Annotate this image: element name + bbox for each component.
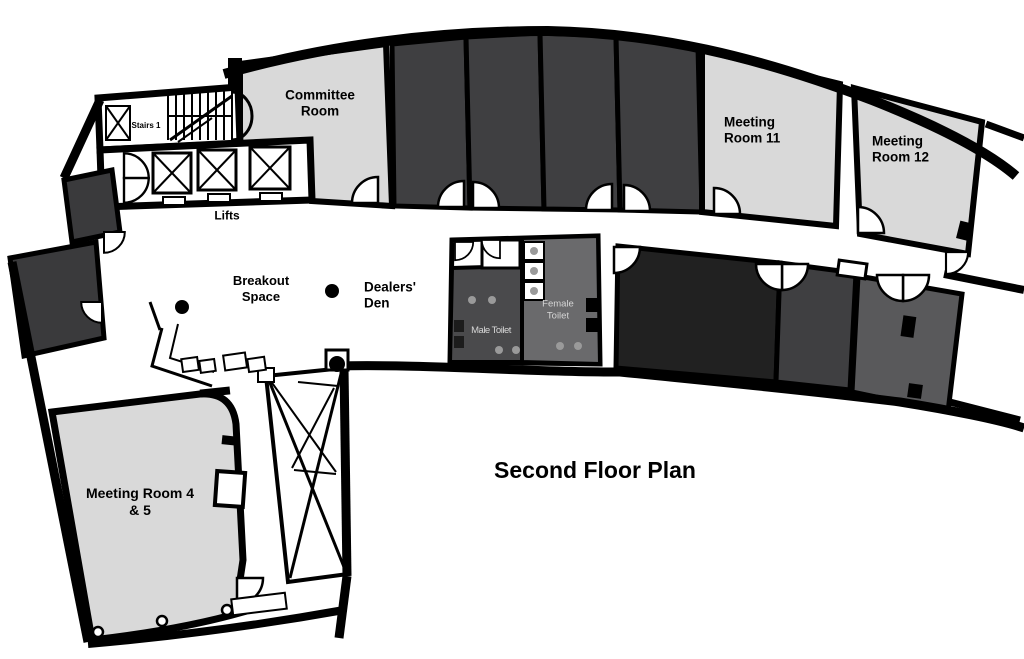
column (454, 336, 464, 348)
column-dot (325, 284, 339, 298)
wall-opening (837, 260, 867, 279)
stairs-1-label: Stairs 1 (122, 121, 170, 131)
plan-title: Second Floor Plan (445, 456, 745, 484)
wall-opening (215, 471, 245, 507)
column-dot (175, 300, 189, 314)
dealers-den-label: Dealers' Den (364, 280, 426, 313)
wall-nub (907, 383, 923, 399)
meeting-room-12-label: Meeting Room 12 (872, 134, 942, 167)
wall (986, 124, 1024, 138)
column-circle (222, 605, 232, 615)
floor-plan-canvas: Stairs 1 Lifts Committee Room Meeting Ro… (0, 0, 1024, 659)
female-toilet-label: Female Toilet (537, 298, 579, 321)
wall (944, 274, 1024, 290)
wall-nub (200, 386, 231, 397)
column-circle (93, 627, 103, 637)
meeting-room-4-5-label: Meeting Room 4 & 5 (84, 485, 196, 519)
column (586, 318, 598, 332)
bottom-left-block (52, 302, 348, 644)
meeting-room-11-label: Meeting Room 11 (724, 115, 794, 148)
door-arc (946, 252, 968, 274)
committee-room-label: Committee Room (275, 88, 365, 121)
wall-nub (222, 435, 239, 446)
column-circle (157, 616, 167, 626)
outer-wall-left-top (64, 100, 100, 178)
breakout-space-label: Breakout Space (226, 273, 296, 305)
column (586, 298, 598, 312)
ramp-walls (150, 302, 266, 386)
lifts-label: Lifts (207, 209, 247, 224)
male-toilet-label: Male Toilet (456, 325, 526, 337)
door-arc (104, 232, 125, 253)
lower-room-band (336, 246, 1024, 428)
column-dot (329, 356, 345, 372)
lift-shafts (153, 147, 290, 205)
